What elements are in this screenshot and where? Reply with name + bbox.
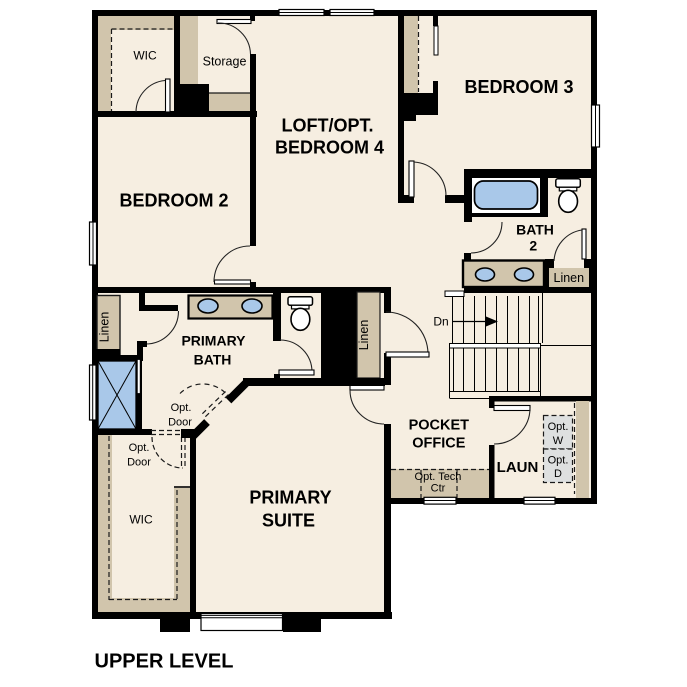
- svg-text:D: D: [554, 468, 562, 480]
- svg-text:Linen: Linen: [554, 271, 585, 285]
- svg-text:Dn: Dn: [433, 315, 448, 329]
- svg-text:2: 2: [529, 238, 537, 254]
- svg-text:BATH: BATH: [516, 222, 554, 238]
- svg-text:WIC: WIC: [129, 513, 153, 527]
- svg-text:BEDROOM 3: BEDROOM 3: [464, 77, 573, 97]
- svg-text:LOFT/OPT.: LOFT/OPT.: [282, 115, 374, 135]
- svg-text:W: W: [553, 435, 564, 447]
- svg-text:BEDROOM 2: BEDROOM 2: [119, 190, 228, 210]
- svg-text:WIC: WIC: [133, 49, 157, 63]
- svg-text:Door: Door: [127, 457, 151, 469]
- svg-text:Ctr: Ctr: [431, 483, 446, 495]
- svg-text:Opt. Tech: Opt. Tech: [415, 471, 462, 483]
- svg-text:Linen: Linen: [357, 320, 371, 351]
- svg-text:UPPER LEVEL: UPPER LEVEL: [95, 651, 234, 673]
- svg-text:Linen: Linen: [98, 312, 112, 343]
- svg-text:BATH: BATH: [194, 352, 232, 368]
- svg-text:Opt.: Opt.: [129, 442, 150, 454]
- svg-text:BEDROOM 4: BEDROOM 4: [275, 137, 384, 157]
- svg-text:SUITE: SUITE: [262, 511, 315, 531]
- svg-text:LAUN: LAUN: [497, 459, 539, 476]
- svg-text:Opt.: Opt.: [171, 402, 192, 414]
- svg-text:POCKET: POCKET: [409, 418, 470, 434]
- svg-text:PRIMARY: PRIMARY: [181, 333, 246, 349]
- svg-text:Storage: Storage: [203, 55, 247, 69]
- svg-text:Door: Door: [168, 417, 192, 429]
- svg-text:Opt.: Opt.: [548, 455, 569, 467]
- svg-text:OFFICE: OFFICE: [412, 436, 465, 452]
- svg-text:Opt.: Opt.: [548, 421, 569, 433]
- svg-text:PRIMARY: PRIMARY: [249, 488, 331, 508]
